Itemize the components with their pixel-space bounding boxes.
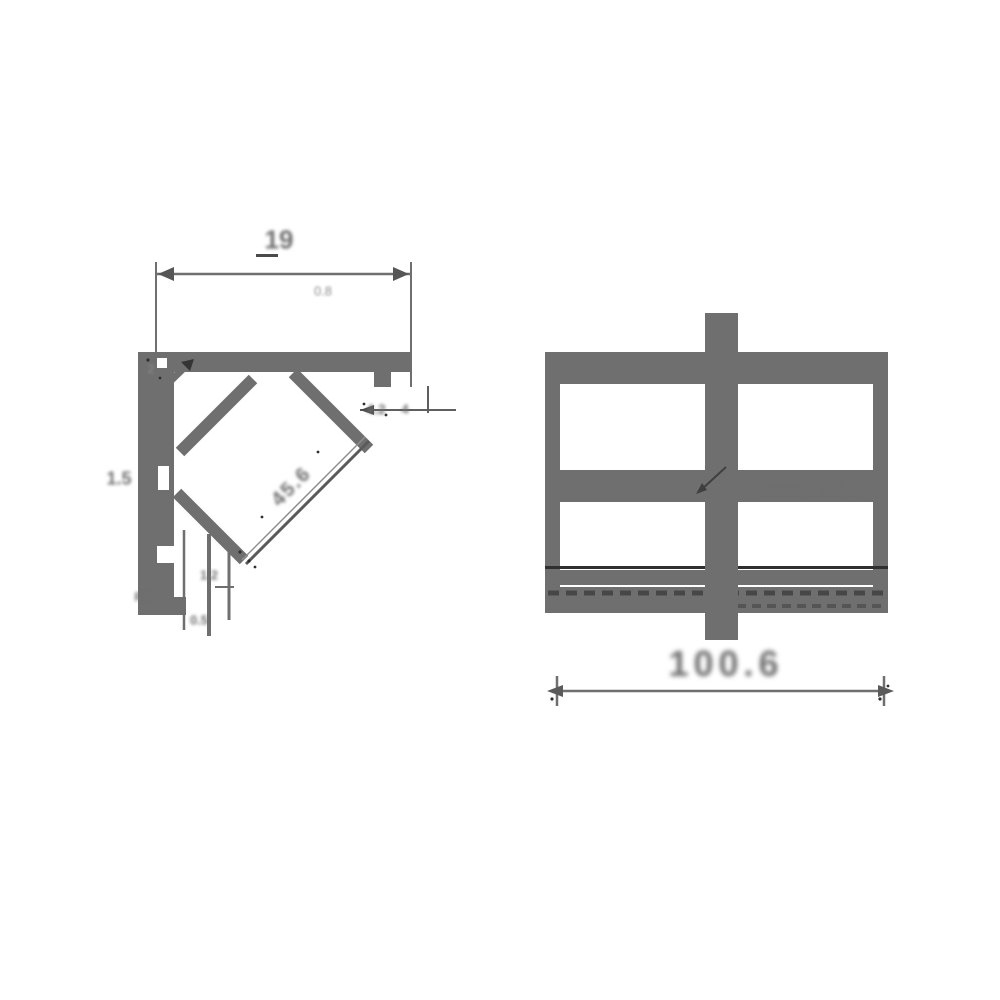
channel-wall-back bbox=[180, 379, 253, 452]
drawing-linework bbox=[0, 0, 1000, 1000]
width-dimension-label: 19 bbox=[265, 225, 294, 256]
flange-slot bbox=[158, 466, 169, 490]
radius-note-label: R1 bbox=[134, 590, 149, 604]
tick-dot bbox=[238, 550, 241, 553]
tick-dot bbox=[247, 559, 250, 562]
dim-arrowhead bbox=[547, 685, 563, 697]
bottom-dimension-label-b: 8 bbox=[164, 572, 171, 586]
flange-slot bbox=[157, 358, 167, 368]
foot-dimension-label: 0.5 bbox=[190, 613, 208, 628]
lip-dimension-label-b: 4 bbox=[401, 402, 408, 417]
channel-front-face-inner bbox=[242, 437, 365, 560]
channel-wall-upper bbox=[293, 373, 369, 449]
left-corner-profile-drawing bbox=[138, 254, 456, 636]
flange-slot bbox=[157, 546, 177, 563]
overall-dimension-label: 100.6 bbox=[668, 643, 783, 685]
bottom-dimension-label-a: 1.2 bbox=[200, 568, 218, 583]
tick-dot bbox=[363, 403, 366, 406]
dim-arrowhead bbox=[393, 267, 409, 281]
lip-dimension-label-a: 4.2 bbox=[366, 401, 385, 417]
drawing-sheet: 19 0.8 2 1.5 4.2 4 45.6 1.2 8 R1 0.5 4.5… bbox=[0, 0, 1000, 1000]
tick-dot bbox=[261, 516, 264, 519]
dim-arrowhead bbox=[878, 685, 894, 697]
dim-arrowhead bbox=[158, 267, 174, 281]
tick-dot bbox=[159, 377, 162, 380]
band-text-label: oooo ALU bbox=[764, 482, 866, 500]
sub-dimension-label: 0.8 bbox=[314, 284, 332, 299]
channel-front-face bbox=[246, 441, 369, 564]
tick-dot bbox=[878, 697, 881, 700]
tick-dot bbox=[887, 685, 890, 688]
center-bar bbox=[705, 313, 738, 640]
tick-dot bbox=[550, 697, 553, 700]
tick-dot bbox=[254, 566, 257, 569]
top-flange-lip bbox=[374, 372, 391, 387]
corner-note-label: 2 bbox=[148, 362, 155, 376]
side-thickness-label: 1.5 bbox=[106, 469, 131, 490]
tick-dot bbox=[317, 451, 320, 454]
